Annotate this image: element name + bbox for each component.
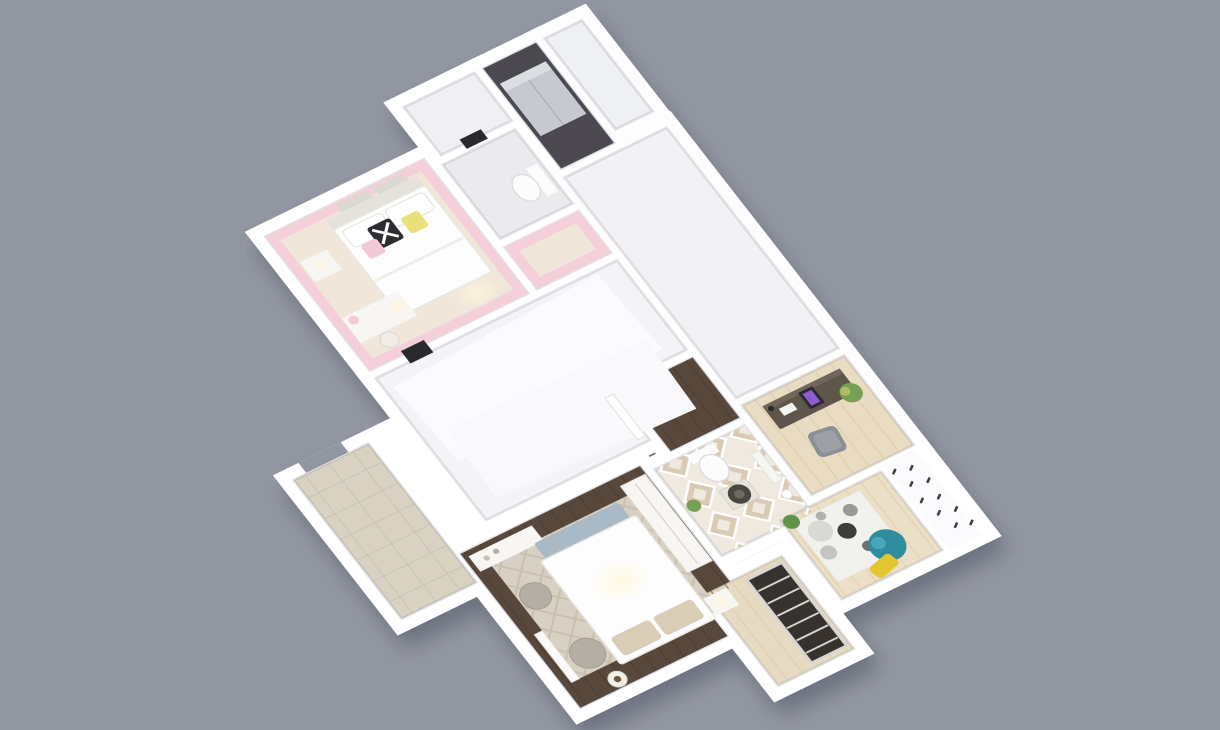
floorplan-render xyxy=(0,0,1220,730)
